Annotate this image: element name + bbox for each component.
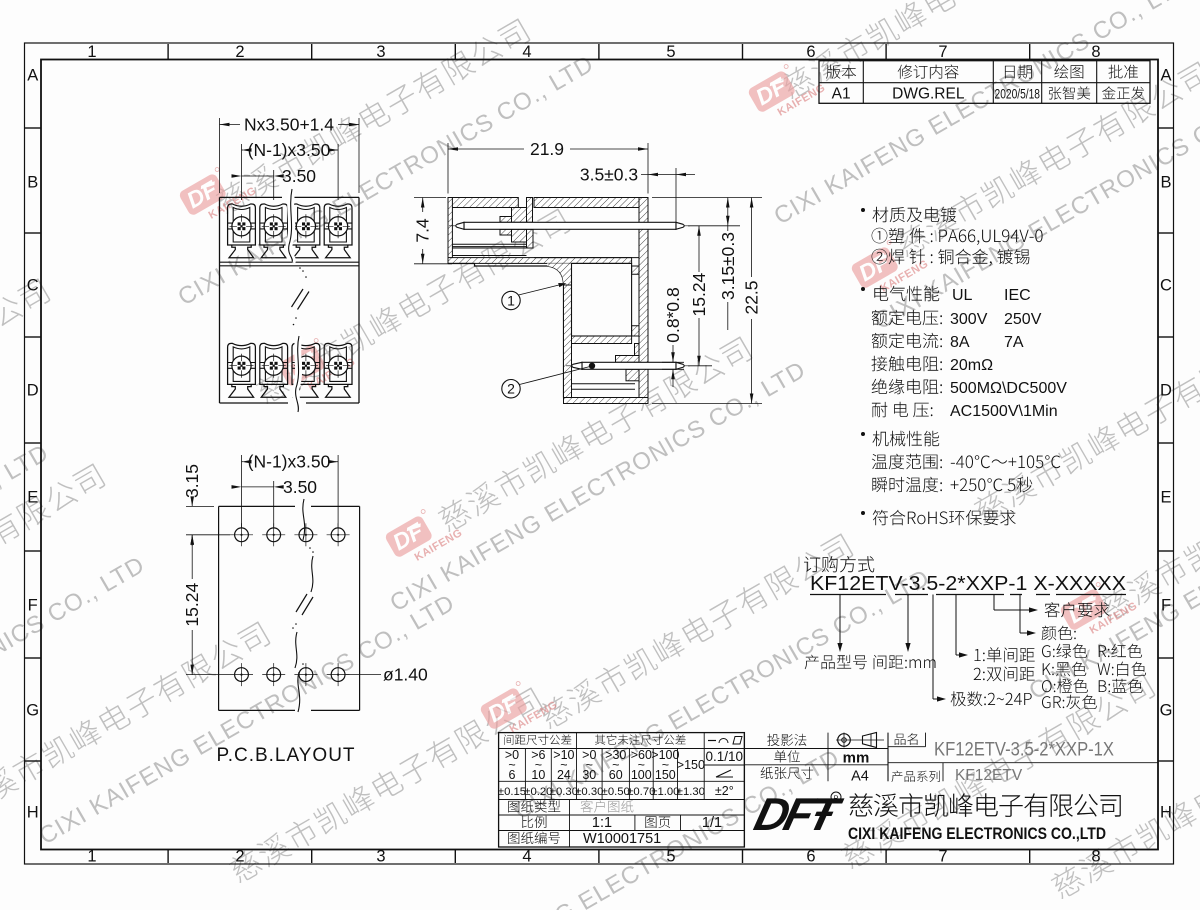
svg-text:150: 150	[655, 768, 676, 782]
svg-text:C: C	[27, 277, 39, 295]
svg-text:500MΩ\DC500V: 500MΩ\DC500V	[950, 380, 1067, 397]
svg-text:20mΩ: 20mΩ	[950, 357, 993, 374]
svg-text:3.50: 3.50	[282, 166, 316, 186]
svg-text:C: C	[1160, 277, 1172, 295]
svg-text:H: H	[1160, 804, 1172, 822]
svg-text:(N-1)x3.50: (N-1)x3.50	[248, 452, 331, 472]
svg-text:5: 5	[666, 848, 675, 866]
svg-text:22.5: 22.5	[742, 280, 762, 314]
svg-text:21.9: 21.9	[530, 139, 564, 159]
svg-text:6: 6	[509, 768, 516, 782]
svg-text:4: 4	[522, 848, 531, 866]
svg-text:1: 1	[507, 293, 515, 309]
svg-text:8: 8	[1091, 848, 1100, 866]
svg-text:2: 2	[507, 381, 515, 397]
svg-text:KF12ETV-3.5-2*XXP-1 X-XXXXX: KF12ETV-3.5-2*XXP-1 X-XXXXX	[810, 573, 1126, 595]
svg-text:G: G	[1160, 702, 1173, 720]
svg-text:±1.00: ±1.00	[651, 786, 679, 798]
svg-text:0.8*0.8: 0.8*0.8	[663, 287, 683, 342]
svg-text:±2°: ±2°	[715, 784, 734, 798]
svg-text:>150: >150	[677, 758, 705, 772]
svg-text:G: G	[26, 702, 39, 720]
svg-text:E: E	[1160, 489, 1171, 507]
svg-text:3.50: 3.50	[283, 477, 317, 497]
svg-text:A: A	[1160, 67, 1171, 85]
svg-text:8A: 8A	[950, 334, 970, 351]
svg-text:B: B	[1160, 174, 1171, 192]
svg-text:F: F	[28, 597, 38, 615]
svg-text:ø1.40: ø1.40	[383, 665, 428, 685]
svg-text:2: 2	[235, 43, 244, 61]
svg-text:60: 60	[609, 768, 623, 782]
svg-text:B: B	[27, 174, 38, 192]
svg-text:24: 24	[557, 768, 571, 782]
svg-text:F: F	[1161, 597, 1171, 615]
svg-text:±0.50: ±0.50	[602, 786, 630, 798]
svg-text:3: 3	[376, 43, 385, 61]
svg-text:1: 1	[87, 43, 96, 61]
svg-text:0.1/10: 0.1/10	[706, 749, 744, 764]
svg-text:6: 6	[806, 848, 815, 866]
svg-text:4: 4	[522, 43, 531, 61]
svg-text:5: 5	[666, 43, 675, 61]
svg-text:±0.30: ±0.30	[550, 786, 578, 798]
svg-text:7: 7	[938, 43, 947, 61]
svg-text:E: E	[27, 489, 38, 507]
svg-text:±0.20: ±0.20	[524, 786, 552, 798]
svg-text:300V: 300V	[950, 311, 988, 328]
svg-text:UL: UL	[952, 287, 973, 304]
svg-text:2: 2	[235, 848, 244, 866]
svg-text:A4: A4	[851, 768, 869, 784]
svg-text:KF12ETV-3.5-2*XXP-1X: KF12ETV-3.5-2*XXP-1X	[934, 740, 1114, 761]
svg-text:30: 30	[582, 768, 596, 782]
svg-text:8: 8	[1091, 43, 1100, 61]
svg-text:H: H	[27, 804, 39, 822]
svg-text:(N-1)x3.50: (N-1)x3.50	[248, 140, 331, 160]
svg-text:±0.30: ±0.30	[575, 786, 603, 798]
svg-text:1: 1	[87, 848, 96, 866]
svg-text:1/1: 1/1	[702, 815, 722, 831]
svg-text:1:1: 1:1	[592, 815, 612, 831]
svg-text:7A: 7A	[1004, 334, 1024, 351]
svg-text:3.5±0.3: 3.5±0.3	[580, 165, 638, 185]
svg-text:D: D	[1160, 382, 1172, 400]
svg-text:Nx3.50+1.4: Nx3.50+1.4	[244, 115, 334, 135]
svg-text:15.24: 15.24	[182, 583, 202, 627]
svg-text:mm: mm	[843, 749, 870, 766]
svg-text:3: 3	[376, 848, 385, 866]
svg-text:A1: A1	[832, 86, 851, 103]
svg-text:3.15±0.3: 3.15±0.3	[718, 232, 738, 300]
svg-text:R: R	[833, 796, 838, 803]
svg-text:250V: 250V	[1004, 311, 1042, 328]
svg-text:W10001751: W10001751	[583, 831, 661, 847]
svg-text:±1.30: ±1.30	[677, 786, 705, 798]
svg-text:A: A	[27, 67, 38, 85]
svg-text:7: 7	[938, 848, 947, 866]
svg-text:2020/5/18: 2020/5/18	[995, 87, 1041, 102]
svg-text:AC1500V\1Min: AC1500V\1Min	[950, 403, 1058, 420]
svg-text:10: 10	[531, 768, 545, 782]
svg-text:P.C.B.LAYOUT: P.C.B.LAYOUT	[216, 745, 355, 766]
svg-text:7.4: 7.4	[413, 218, 433, 243]
svg-text:±0.15: ±0.15	[498, 786, 526, 798]
svg-text:CIXI KAIFENG ELECTRONICS CO.,L: CIXI KAIFENG ELECTRONICS CO.,LTD	[848, 824, 1106, 843]
svg-text:IEC: IEC	[1004, 287, 1031, 304]
svg-text:D: D	[27, 382, 39, 400]
svg-text:100: 100	[631, 768, 652, 782]
svg-text:6: 6	[806, 43, 815, 61]
svg-text:15.24: 15.24	[689, 272, 709, 316]
svg-text:3.15: 3.15	[182, 464, 202, 498]
svg-text:DWG.REL: DWG.REL	[892, 86, 965, 103]
svg-text:KF12ETV: KF12ETV	[955, 767, 1023, 784]
